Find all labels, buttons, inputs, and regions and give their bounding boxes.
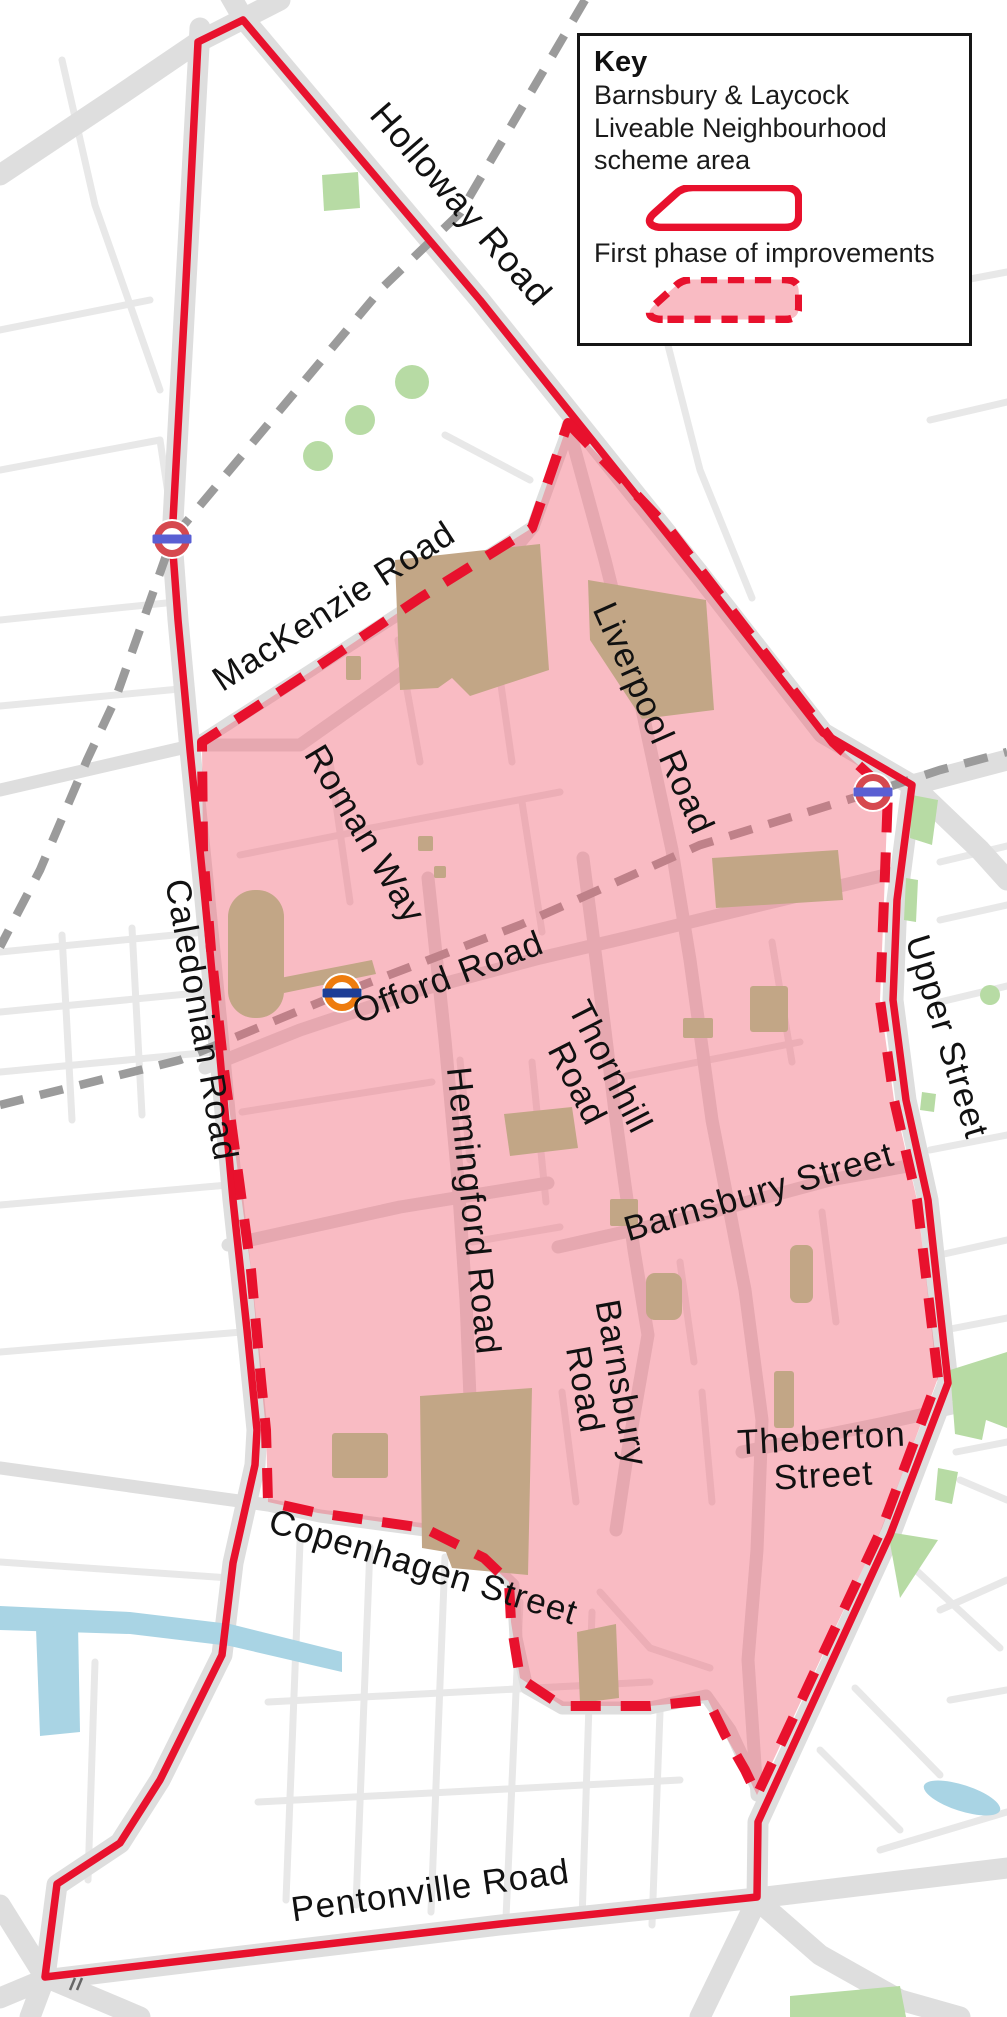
- map-screen: Holloway RoadMacKenzie RoadLiverpool Roa…: [0, 0, 1007, 2017]
- underground-station-icon: [152, 519, 192, 559]
- building: [658, 1277, 676, 1313]
- water: [36, 1624, 80, 1736]
- roundel-bar: [854, 788, 893, 797]
- building: [774, 1371, 794, 1428]
- green-space: [395, 365, 429, 399]
- underground-station-icon: [853, 772, 893, 812]
- building: [750, 986, 788, 1032]
- key-phase-label: First phase of improvements: [594, 237, 955, 269]
- building: [577, 1624, 619, 1703]
- building: [504, 1107, 578, 1156]
- building: [346, 656, 361, 680]
- green-space: [322, 172, 360, 211]
- building: [683, 1018, 713, 1038]
- building: [228, 890, 284, 1018]
- green-space: [920, 1092, 936, 1112]
- green-space: [303, 441, 333, 471]
- green-space: [345, 405, 375, 435]
- key-scheme-label: Barnsbury & Laycock Liveable Neighbourho…: [594, 79, 955, 176]
- phase-area-swatch-icon: [640, 277, 802, 323]
- building: [418, 836, 433, 851]
- building: [434, 866, 446, 878]
- building: [790, 1245, 813, 1303]
- building: [712, 850, 843, 908]
- green-space: [904, 878, 918, 922]
- scheme-area-swatch-icon: [640, 185, 802, 231]
- key-heading: Key: [594, 46, 955, 79]
- map-key: Key Barnsbury & Laycock Liveable Neighbo…: [577, 33, 972, 346]
- roundel-bar: [153, 535, 192, 544]
- building: [332, 1433, 388, 1478]
- green-space: [980, 985, 1000, 1005]
- building: [420, 1388, 532, 1575]
